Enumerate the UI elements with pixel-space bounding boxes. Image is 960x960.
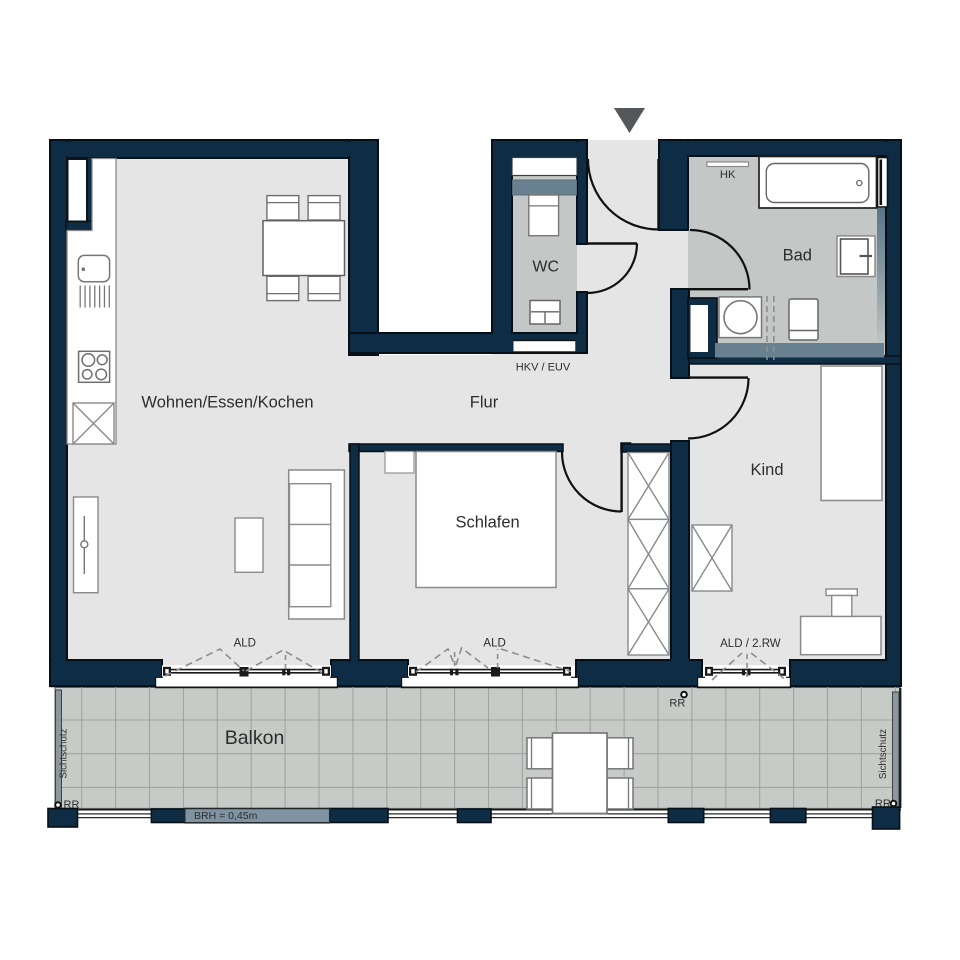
svg-text:Schlafen: Schlafen bbox=[455, 514, 519, 532]
svg-text:ALD: ALD bbox=[483, 638, 505, 650]
svg-text:WC: WC bbox=[532, 259, 559, 276]
svg-text:RR: RR bbox=[669, 698, 685, 710]
svg-text:RR: RR bbox=[875, 798, 891, 810]
svg-text:Balkon: Balkon bbox=[225, 727, 285, 749]
svg-text:BRH = 0,45m: BRH = 0,45m bbox=[194, 810, 258, 822]
svg-text:Wohnen/Essen/Kochen: Wohnen/Essen/Kochen bbox=[141, 394, 313, 412]
svg-text:ALD: ALD bbox=[234, 638, 256, 650]
svg-text:Bad: Bad bbox=[783, 247, 812, 265]
svg-text:Kind: Kind bbox=[750, 461, 783, 479]
svg-text:Flur: Flur bbox=[470, 394, 499, 412]
svg-text:ALD / 2.RW: ALD / 2.RW bbox=[720, 638, 781, 650]
svg-text:Sichtschutz: Sichtschutz bbox=[59, 728, 70, 778]
svg-text:RR: RR bbox=[64, 799, 80, 811]
svg-text:HK: HK bbox=[720, 169, 736, 181]
svg-text:Sichtschutz: Sichtschutz bbox=[878, 729, 889, 779]
svg-text:HKV / EUV: HKV / EUV bbox=[516, 362, 571, 374]
